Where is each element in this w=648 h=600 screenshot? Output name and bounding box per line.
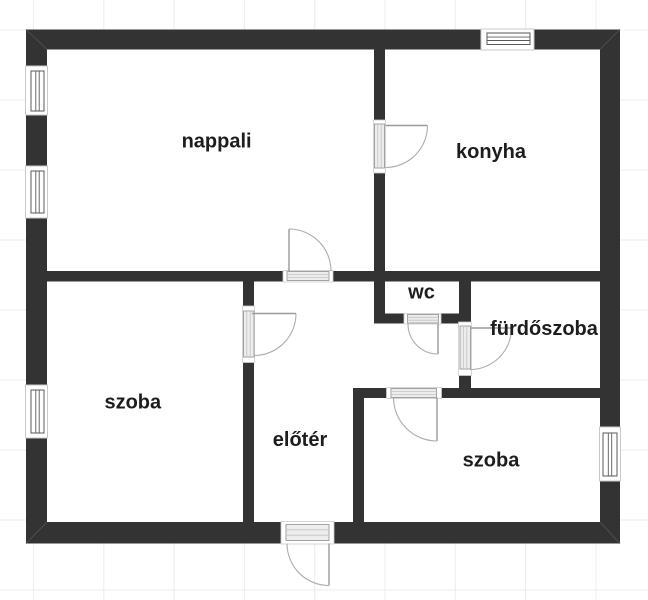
svg-text:nappali: nappali	[182, 131, 252, 153]
svg-text:fürdőszoba: fürdőszoba	[490, 318, 599, 340]
svg-text:előtér: előtér	[273, 429, 328, 451]
svg-text:szoba: szoba	[104, 392, 162, 414]
svg-text:konyha: konyha	[456, 141, 527, 163]
svg-text:wc: wc	[407, 282, 435, 304]
svg-text:szoba: szoba	[463, 450, 521, 472]
